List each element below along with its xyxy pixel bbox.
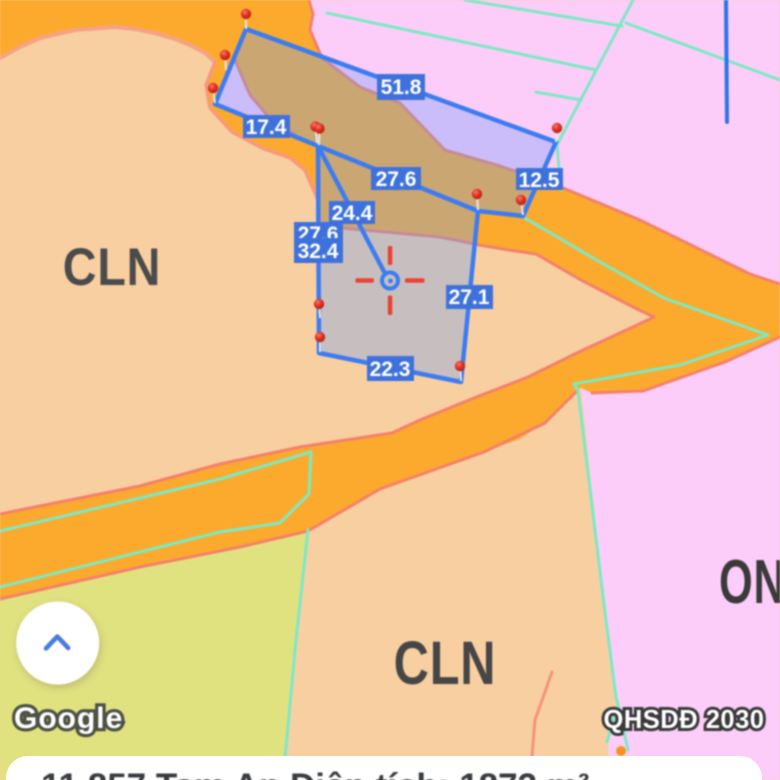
svg-text:CLN: CLN [394,629,497,697]
svg-text:QHSDĐ 2030: QHSDĐ 2030 [604,706,765,734]
svg-text:17.4: 17.4 [246,116,287,139]
svg-text:27.1: 27.1 [449,286,490,309]
svg-text:32.4: 32.4 [298,240,339,263]
svg-text:27.6: 27.6 [376,168,417,191]
svg-text:24.4: 24.4 [332,202,373,225]
svg-text:12.5: 12.5 [519,169,560,192]
svg-text:Google: Google [14,702,123,735]
svg-text:51.8: 51.8 [381,76,422,99]
svg-text:ONT: ONT [719,549,780,617]
svg-text:22.3: 22.3 [370,358,411,381]
svg-text:CLN: CLN [63,237,161,296]
